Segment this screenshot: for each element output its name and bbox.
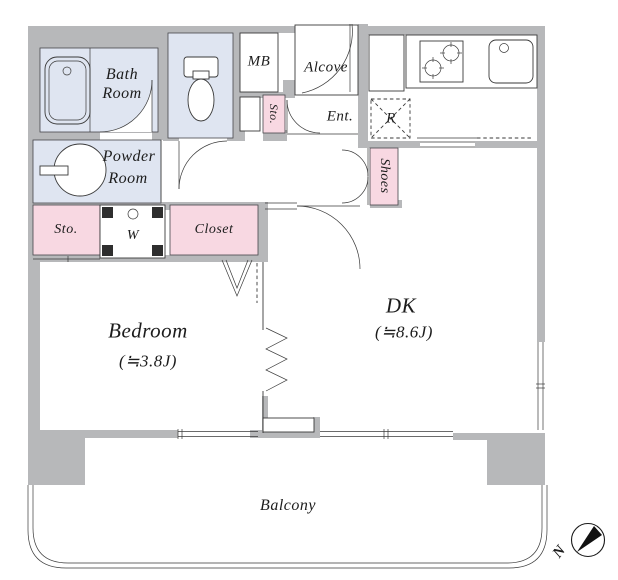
washer-label: W bbox=[127, 229, 139, 243]
wall-niche bbox=[263, 418, 314, 432]
dk-size-label: (≒8.6J) bbox=[375, 324, 433, 341]
kitchen-counter bbox=[369, 35, 537, 147]
dk-label: DK bbox=[386, 296, 416, 317]
entrance-storage-label: Sto. bbox=[268, 104, 280, 124]
bedroom-size-label: (≒3.8J) bbox=[119, 353, 177, 370]
toilet-door bbox=[179, 141, 227, 189]
pipe-space-box bbox=[240, 97, 260, 131]
shoe-cabinet-label: Shoes bbox=[377, 158, 391, 193]
bathroom-label-2: Room bbox=[102, 86, 141, 102]
bedroom-label: Bedroom bbox=[108, 321, 188, 342]
balcony-label: Balcony bbox=[260, 498, 316, 514]
floor-plan: Bath Room MB Alcove Sto. Ent. R Powder R… bbox=[0, 0, 618, 580]
windows bbox=[178, 342, 545, 439]
entrance-label: Ent. bbox=[327, 110, 354, 125]
meter-box-label: MB bbox=[248, 55, 271, 70]
kitchen-cabinet bbox=[369, 35, 404, 91]
storage-label: Sto. bbox=[54, 223, 77, 237]
closet-label: Closet bbox=[195, 223, 234, 237]
shoe-cabinet-doors bbox=[342, 148, 368, 205]
dk-door bbox=[297, 206, 360, 269]
alcove-label: Alcove bbox=[304, 61, 348, 76]
dk-side-window bbox=[536, 342, 545, 430]
dk-bottom-window bbox=[320, 429, 453, 439]
closet-folding-door bbox=[222, 260, 252, 296]
bedroom-window bbox=[178, 429, 258, 439]
powder-room-label-2: Room bbox=[108, 171, 147, 187]
floor-plan-drawing bbox=[0, 0, 618, 580]
refrigerator-label: R bbox=[386, 112, 396, 127]
accordion-partition bbox=[257, 262, 287, 433]
powder-room-label-1: Powder bbox=[103, 149, 156, 165]
bathroom-label-1: Bath bbox=[106, 67, 138, 83]
entrance-storage-door bbox=[287, 100, 320, 133]
compass-icon bbox=[572, 524, 605, 557]
